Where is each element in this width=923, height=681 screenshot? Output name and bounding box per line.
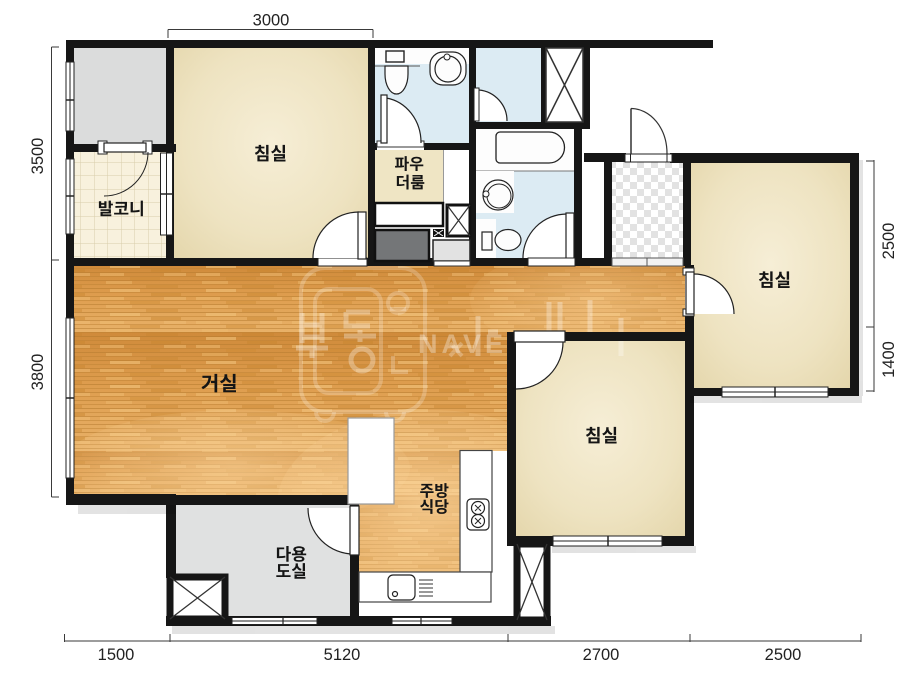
svg-text:3000: 3000 bbox=[253, 12, 290, 30]
svg-text:2500: 2500 bbox=[765, 646, 802, 664]
svg-text:5120: 5120 bbox=[324, 646, 361, 664]
svg-text:3800: 3800 bbox=[29, 354, 47, 391]
svg-text:2500: 2500 bbox=[880, 223, 898, 260]
svg-text:2700: 2700 bbox=[583, 646, 620, 664]
svg-text:3500: 3500 bbox=[29, 138, 47, 175]
svg-text:1400: 1400 bbox=[880, 341, 898, 378]
svg-text:1500: 1500 bbox=[98, 646, 135, 664]
